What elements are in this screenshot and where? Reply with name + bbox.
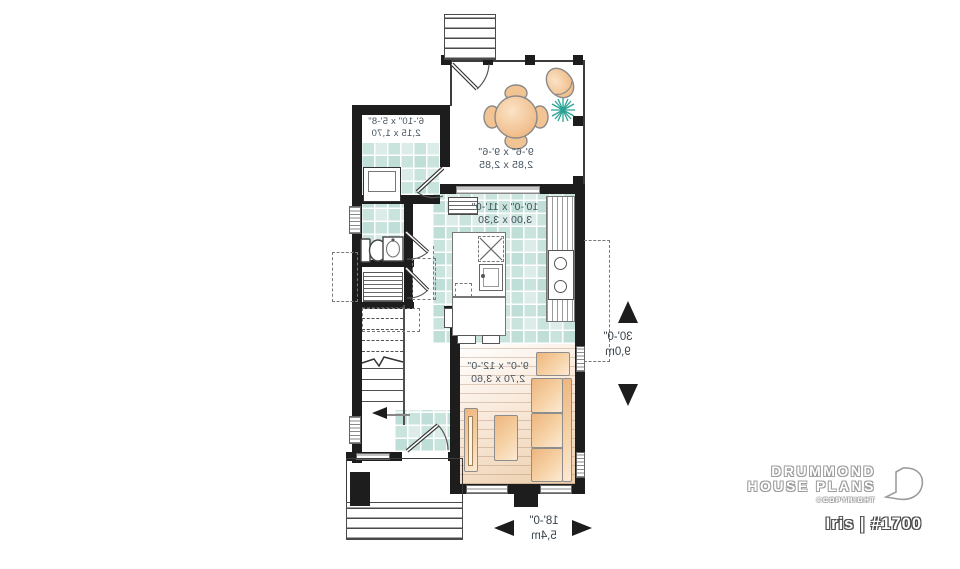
living-dim-imperial: 9'-0" x 12'-0" — [452, 360, 544, 373]
kitchen-dim-imperial: 10'-0" x 11'-0" — [460, 201, 550, 214]
laundry-door — [417, 168, 443, 198]
depth-dimension: 30'-0" 9,0m — [592, 330, 644, 360]
dim-arrow-left-icon — [494, 520, 514, 536]
laundry-label: 6'-10" x 5'-8" 2,15 x 1,70 — [362, 116, 430, 140]
width-dimension: 18'-0" 5,4m — [516, 514, 572, 544]
front-door — [407, 425, 448, 451]
powder-door — [406, 232, 428, 259]
plan-id: Iris | #1700 — [744, 515, 926, 534]
terrace-dim-metric: 2,85 x 2,85 — [460, 159, 552, 172]
powder-sink — [383, 237, 403, 261]
dishwasher-x-icon — [480, 238, 502, 260]
stair-break-line — [362, 357, 403, 366]
closet-door — [406, 268, 428, 298]
living-dim-metric: 2,70 x 3,60 — [452, 373, 544, 386]
width-metric: 5,4m — [516, 529, 572, 544]
terrace-screen-door — [452, 64, 489, 89]
depth-metric: 9,0m — [592, 345, 644, 360]
terrace-lounge-chair — [541, 63, 580, 103]
kitchen-label: 10'-0" x 11'-0" 3,00 x 3,30 — [460, 201, 550, 228]
drummond-d-icon — [882, 464, 926, 508]
dim-arrow-up-icon — [618, 301, 638, 323]
laundry-dim-imperial: 6'-10" x 5'-8" — [362, 116, 430, 128]
brand-name: DRUMMOND HOUSE PLANS ©COPYRIGHT — [747, 464, 876, 504]
terrace-dining-set — [484, 85, 548, 149]
living-label: 9'-0" x 12'-0" 2,70 x 3,60 — [452, 360, 544, 387]
dim-arrow-down-icon — [618, 384, 638, 406]
brand-line1: DRUMMOND — [771, 464, 876, 479]
brand-line2: HOUSE PLANS — [747, 479, 876, 494]
brand-logo: DRUMMOND HOUSE PLANS ©COPYRIGHT Iris | #… — [744, 464, 926, 534]
depth-imperial: 30'-0" — [592, 330, 644, 345]
brand-row: DRUMMOND HOUSE PLANS ©COPYRIGHT — [744, 464, 926, 508]
brand-copyright: ©COPYRIGHT — [817, 497, 876, 504]
plant-icon — [551, 98, 575, 122]
terrace-dim-imperial: 9'-6" x 9'-6" — [460, 146, 552, 159]
floor-plan-canvas: 9'-6" x 9'-6" 2,85 x 2,85 6'-10" x 5'-8"… — [0, 0, 960, 569]
terrace-label: 9'-6" x 9'-6" 2,85 x 2,85 — [460, 146, 552, 173]
dim-arrow-right-icon — [572, 520, 592, 536]
width-imperial: 18'-0" — [516, 514, 572, 529]
laundry-dim-metric: 2,15 x 1,70 — [362, 128, 430, 140]
kitchen-dim-metric: 3,00 x 3,30 — [460, 214, 550, 227]
